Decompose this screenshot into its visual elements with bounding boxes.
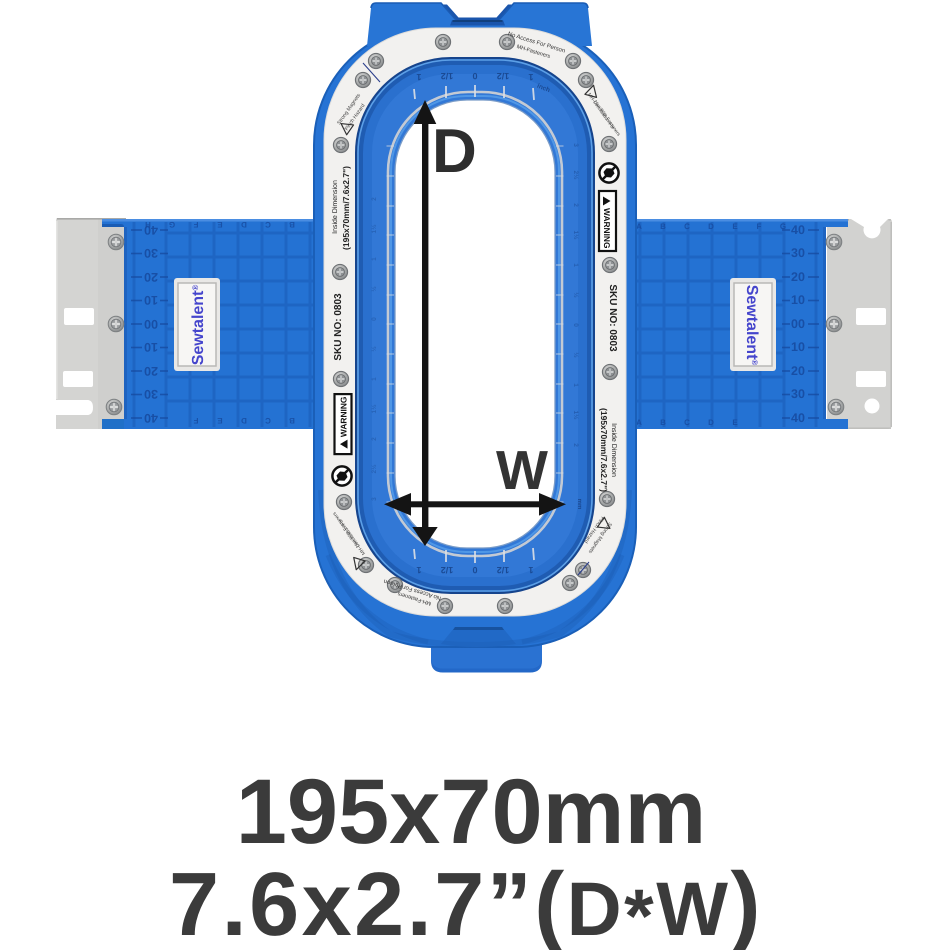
- svg-text:1½: 1½: [572, 230, 579, 240]
- svg-text:B: B: [289, 220, 295, 229]
- svg-text:7.6x2.7”(D*W): 7.6x2.7”(D*W): [169, 855, 763, 950]
- svg-text:C: C: [684, 222, 690, 231]
- svg-text:E: E: [217, 220, 223, 229]
- svg-text:mm: mm: [576, 499, 582, 510]
- svg-text:20: 20: [791, 364, 805, 378]
- svg-text:Inside Dimension: Inside Dimension: [331, 180, 339, 234]
- svg-text:F: F: [757, 222, 762, 231]
- svg-text:1: 1: [416, 565, 421, 575]
- svg-text:D: D: [708, 222, 714, 231]
- svg-text:H: H: [145, 220, 151, 229]
- svg-text:G: G: [169, 220, 175, 229]
- svg-text:1½: 1½: [572, 410, 579, 420]
- svg-text:1: 1: [572, 263, 579, 267]
- svg-text:C: C: [684, 418, 690, 427]
- svg-text:D: D: [708, 418, 714, 427]
- svg-text:½: ½: [371, 346, 378, 352]
- svg-text:E: E: [732, 222, 738, 231]
- svg-text:1: 1: [528, 565, 533, 575]
- svg-text:10: 10: [791, 340, 805, 354]
- svg-text:30: 30: [144, 387, 158, 401]
- svg-text:1½: 1½: [371, 224, 378, 234]
- svg-text:30: 30: [791, 246, 805, 260]
- svg-text:1/2: 1/2: [441, 565, 454, 575]
- svg-text:1: 1: [371, 377, 378, 381]
- svg-text:00: 00: [791, 317, 805, 331]
- svg-text:SKU NO: 0803: SKU NO: 0803: [607, 284, 618, 352]
- svg-text:SKU NO: 0803: SKU NO: 0803: [333, 293, 344, 361]
- svg-text:1/2: 1/2: [441, 71, 454, 81]
- svg-text:20: 20: [144, 270, 158, 284]
- svg-text:1: 1: [572, 383, 579, 387]
- svg-text:D: D: [241, 220, 247, 229]
- svg-text:C: C: [265, 416, 271, 425]
- svg-text:A: A: [636, 418, 642, 427]
- svg-text:0: 0: [572, 323, 579, 327]
- svg-text:(195x70mm/7.6x2.7"): (195x70mm/7.6x2.7"): [599, 408, 609, 492]
- svg-text:00: 00: [144, 317, 158, 331]
- svg-text:0: 0: [472, 565, 477, 575]
- svg-text:30: 30: [791, 387, 805, 401]
- svg-text:2: 2: [371, 437, 378, 441]
- svg-text:E: E: [732, 418, 738, 427]
- svg-text:0: 0: [472, 71, 477, 81]
- svg-text:D: D: [432, 117, 477, 186]
- svg-text:10: 10: [144, 340, 158, 354]
- svg-text:D: D: [241, 416, 247, 425]
- svg-text:1/2: 1/2: [497, 71, 510, 81]
- svg-text:½: ½: [371, 286, 378, 292]
- svg-text:F: F: [193, 220, 198, 229]
- svg-text:1: 1: [371, 257, 378, 261]
- svg-text:195x70mm: 195x70mm: [236, 761, 707, 863]
- svg-text:F: F: [193, 416, 198, 425]
- svg-text:1½: 1½: [371, 404, 378, 414]
- svg-text:1: 1: [528, 72, 533, 82]
- svg-text:3: 3: [572, 143, 579, 147]
- svg-text:E: E: [217, 416, 223, 425]
- svg-text:2½: 2½: [572, 170, 579, 180]
- svg-text:C: C: [265, 220, 271, 229]
- svg-text:½: ½: [572, 292, 579, 298]
- svg-text:1/2: 1/2: [497, 565, 510, 575]
- svg-text:Sewtalent®: Sewtalent®: [743, 285, 760, 366]
- svg-text:2: 2: [572, 443, 579, 447]
- svg-text:WARNING: WARNING: [602, 208, 612, 248]
- svg-text:10: 10: [791, 293, 805, 307]
- svg-text:WARNING: WARNING: [339, 397, 349, 437]
- svg-text:B: B: [289, 416, 295, 425]
- svg-text:A: A: [636, 222, 642, 231]
- svg-text:30: 30: [144, 246, 158, 260]
- svg-text:Inside Dimension: Inside Dimension: [610, 423, 618, 477]
- svg-text:40: 40: [791, 411, 805, 425]
- svg-text:W: W: [496, 439, 548, 501]
- svg-text:2: 2: [572, 203, 579, 207]
- svg-text:B: B: [660, 418, 666, 427]
- svg-text:20: 20: [144, 364, 158, 378]
- svg-text:3: 3: [371, 497, 378, 501]
- svg-text:1: 1: [416, 72, 421, 82]
- svg-text:Sewtalent®: Sewtalent®: [190, 285, 207, 366]
- svg-text:B: B: [660, 222, 666, 231]
- svg-text:2½: 2½: [371, 464, 378, 474]
- svg-text:10: 10: [144, 293, 158, 307]
- svg-text:2: 2: [371, 197, 378, 201]
- svg-text:(195x70mm/7.6x2.7"): (195x70mm/7.6x2.7"): [341, 166, 351, 250]
- svg-text:40: 40: [791, 223, 805, 237]
- svg-text:0: 0: [371, 317, 378, 321]
- svg-text:½: ½: [572, 352, 579, 358]
- svg-text:40: 40: [144, 411, 158, 425]
- svg-text:20: 20: [791, 270, 805, 284]
